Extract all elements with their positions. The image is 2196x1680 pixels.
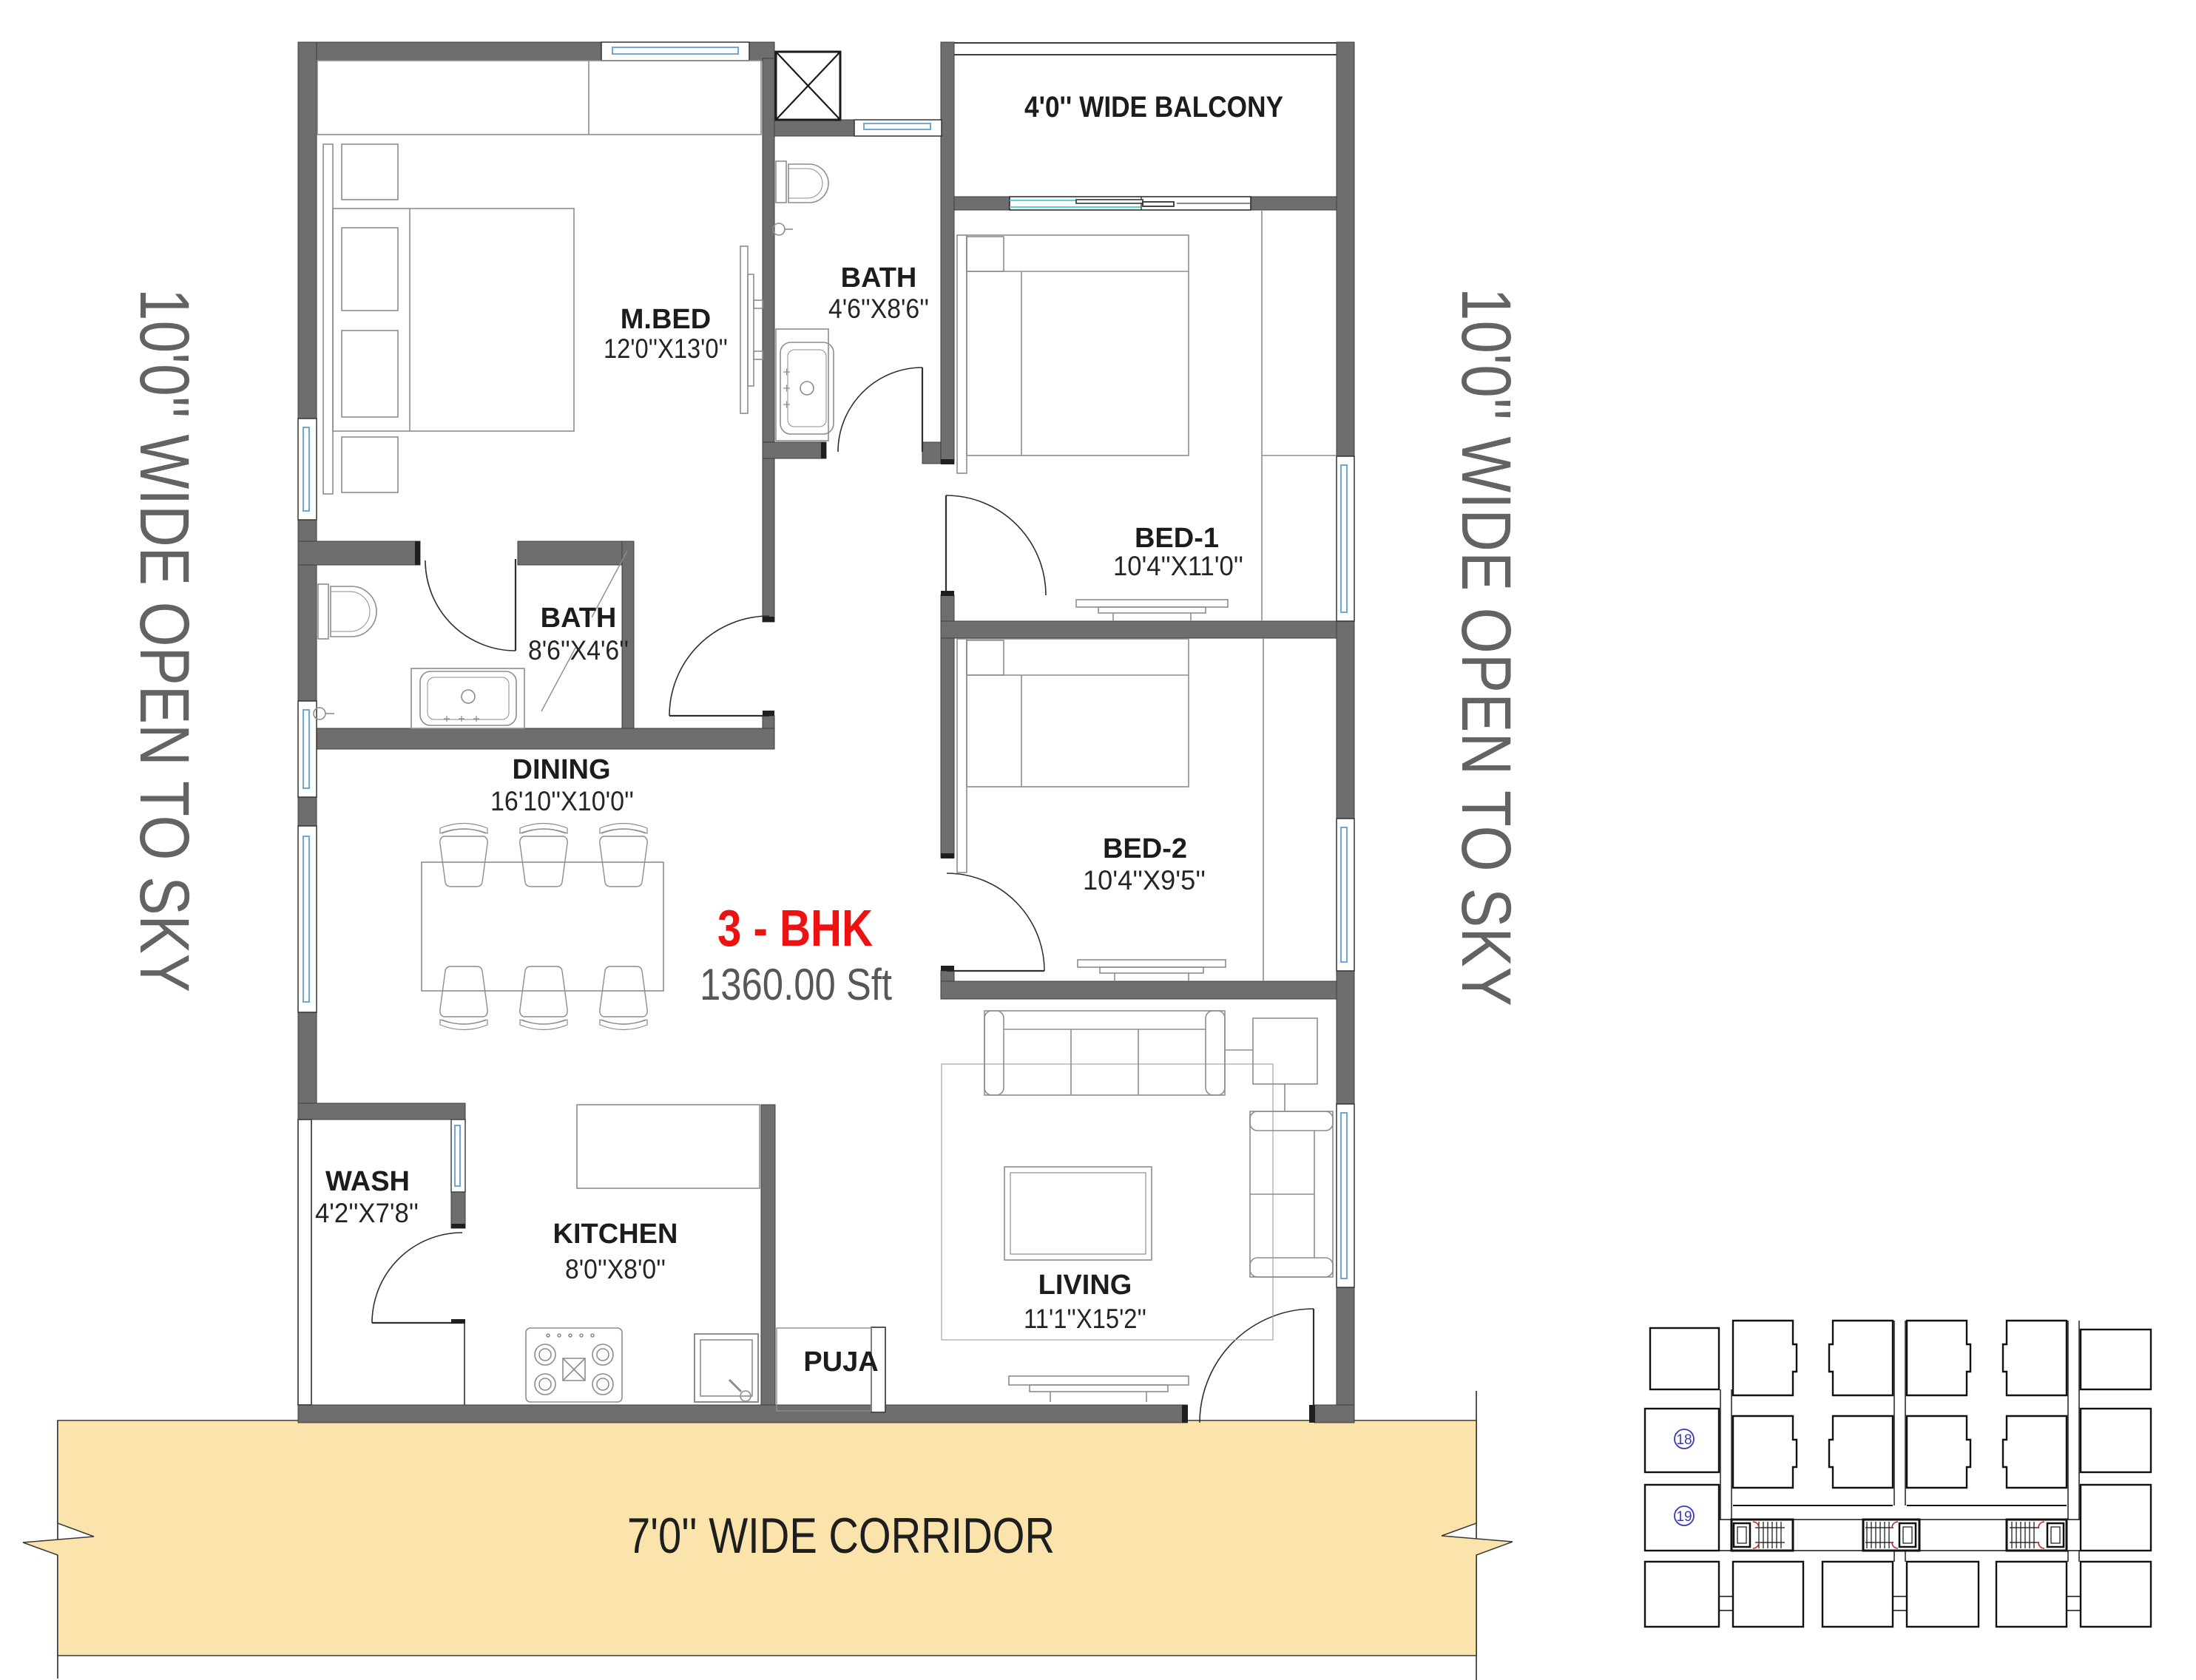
svg-text:11'1''X15'2'': 11'1''X15'2'': [1024, 1304, 1146, 1334]
svg-text:KITCHEN: KITCHEN: [553, 1219, 678, 1250]
svg-text:BATH: BATH: [541, 603, 617, 634]
svg-text:DINING: DINING: [513, 754, 611, 785]
svg-text:10'4''X9'5'': 10'4''X9'5'': [1083, 865, 1206, 895]
svg-text:BED-1: BED-1: [1135, 523, 1219, 554]
svg-text:18: 18: [1676, 1432, 1692, 1448]
svg-text:10'4''X11'0'': 10'4''X11'0'': [1113, 551, 1243, 581]
svg-text:BATH: BATH: [841, 262, 917, 294]
svg-text:16'10''X10'0'': 16'10''X10'0'': [490, 786, 634, 816]
svg-text:3 - BHK: 3 - BHK: [717, 899, 873, 957]
svg-text:M.BED: M.BED: [621, 304, 711, 335]
svg-text:WASH: WASH: [325, 1166, 410, 1197]
svg-text:19: 19: [1676, 1509, 1692, 1525]
svg-text:12'0''X13'0'': 12'0''X13'0'': [604, 333, 728, 364]
svg-text:10'0'' WIDE OPEN TO SKY: 10'0'' WIDE OPEN TO SKY: [125, 288, 203, 992]
svg-text:10'0'' WIDE OPEN TO SKY: 10'0'' WIDE OPEN TO SKY: [1447, 288, 1525, 1006]
svg-text:BED-2: BED-2: [1103, 833, 1187, 864]
svg-text:4'0'' WIDE BALCONY: 4'0'' WIDE BALCONY: [1024, 91, 1283, 123]
svg-text:LIVING: LIVING: [1038, 1270, 1132, 1301]
svg-text:4'2''X7'8'': 4'2''X7'8'': [315, 1198, 419, 1228]
svg-text:PUJA: PUJA: [803, 1347, 878, 1378]
svg-text:4'6''X8'6'': 4'6''X8'6'': [828, 294, 929, 324]
svg-text:1360.00 Sft: 1360.00 Sft: [700, 960, 892, 1009]
svg-text:8'6''X4'6'': 8'6''X4'6'': [528, 635, 629, 665]
svg-text:8'0''X8'0'': 8'0''X8'0'': [565, 1254, 666, 1284]
svg-text:7'0'' WIDE CORRIDOR: 7'0'' WIDE CORRIDOR: [627, 1508, 1055, 1564]
